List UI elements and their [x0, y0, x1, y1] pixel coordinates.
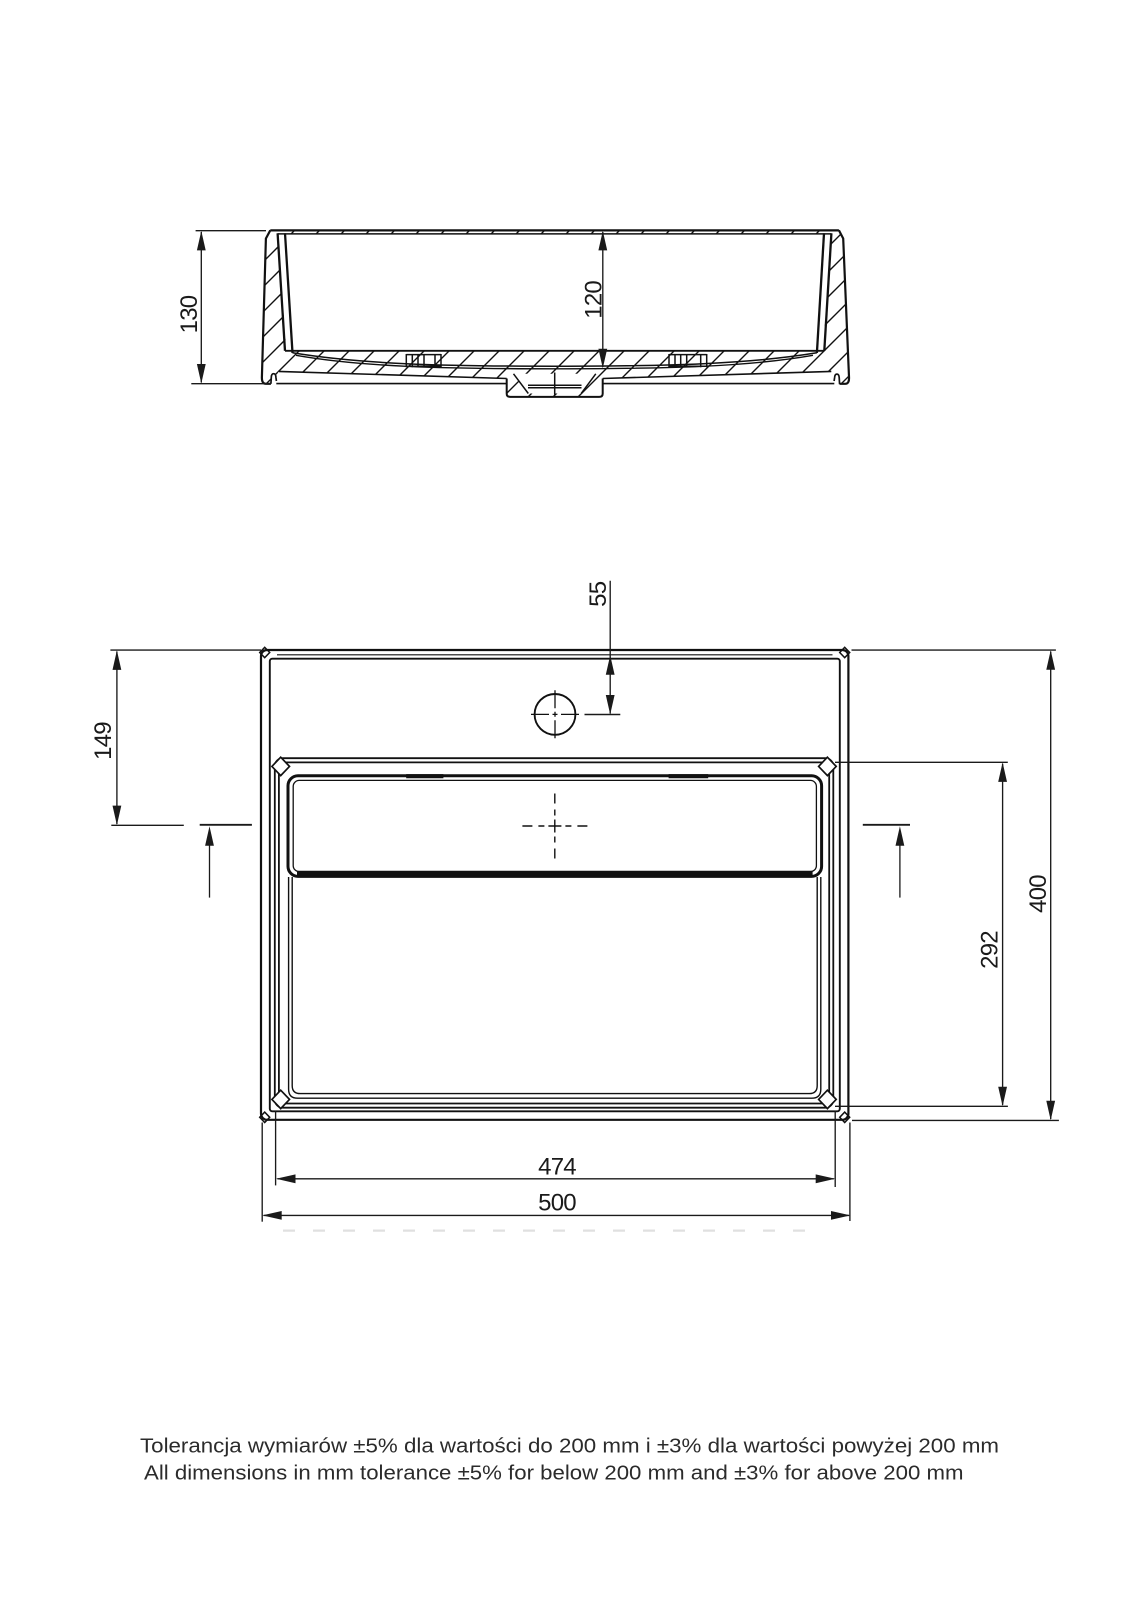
svg-text:55: 55	[585, 581, 612, 607]
svg-text:Tolerancja wymiarów ±5% dla wa: Tolerancja wymiarów ±5% dla wartości do …	[140, 1434, 999, 1457]
svg-text:149: 149	[90, 722, 117, 760]
svg-text:474: 474	[538, 1154, 576, 1181]
svg-text:All dimensions in mm tolerance: All dimensions in mm tolerance ±5% for b…	[144, 1461, 964, 1484]
svg-text:120: 120	[581, 281, 608, 319]
svg-text:292: 292	[977, 931, 1004, 969]
svg-text:500: 500	[538, 1189, 576, 1216]
svg-text:400: 400	[1025, 875, 1052, 913]
svg-text:130: 130	[176, 295, 203, 333]
